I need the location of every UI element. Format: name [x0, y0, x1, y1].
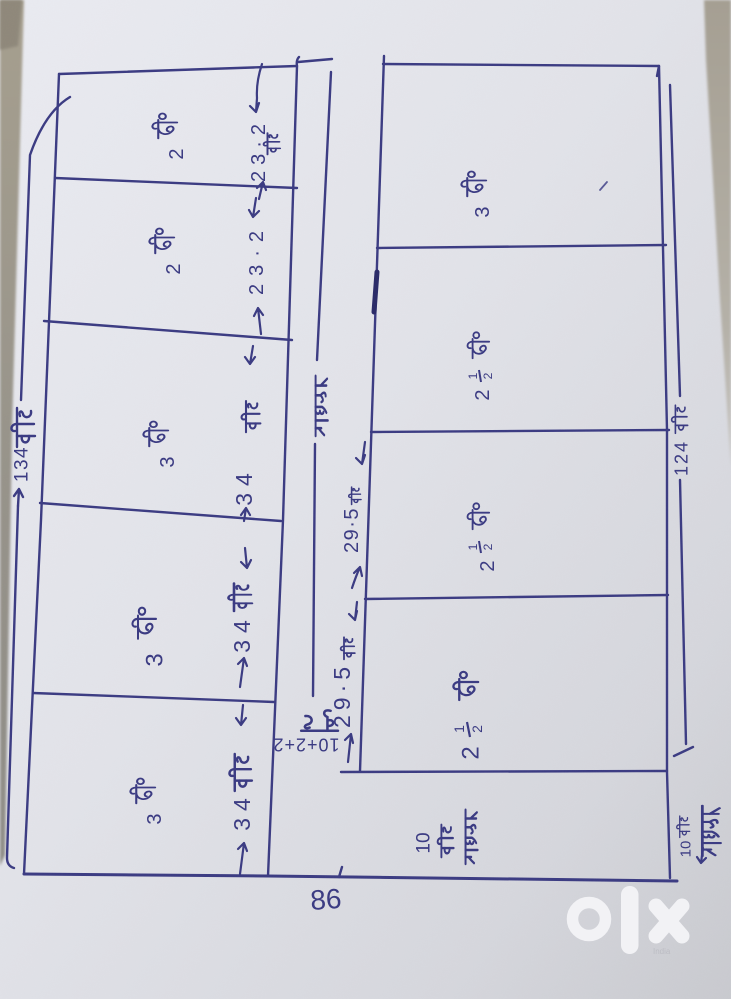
svg-text:India: India	[653, 947, 671, 956]
